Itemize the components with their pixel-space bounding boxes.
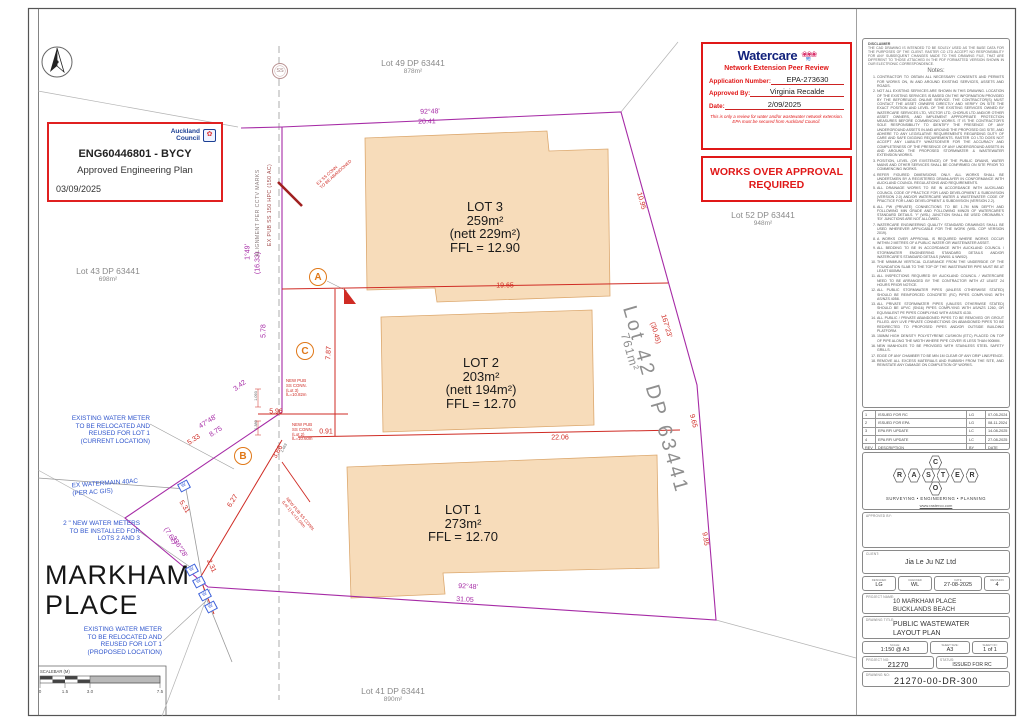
project-name-line2: BUCKLANDS BEACH (893, 606, 955, 613)
scalebar-tick: 7.5 (157, 689, 163, 694)
council-emblem-icon: ✿ (203, 129, 216, 142)
dimension-label: (30.45) (649, 321, 662, 344)
logo-hexagon: S (922, 468, 935, 483)
approved-by-box: APPROVED BY: (862, 512, 1010, 548)
alignment-note: ALIGNMENT PER CCTV MARKS (255, 169, 261, 256)
client-box: CLIENT: Jia Le Ju NZ Ltd (862, 550, 1010, 574)
scale-row: SCALE: 1:150 @ A3 SHEET SIZE: A3 SHEET N… (862, 641, 1010, 654)
sheet-size-box: SHEET SIZE: A3 (930, 641, 970, 654)
application-number-value: EPA-273630 (771, 76, 844, 85)
project-no-box: PROJECT NO: 21270 (862, 656, 934, 669)
application-number-label: Application Number: (709, 78, 771, 85)
note-item: ALL PW (PRIVATE) CONNECTIONS TO BE 1.7M … (877, 205, 1004, 222)
meta-revision-box: REVISION4 (984, 576, 1010, 591)
watercare-stamp: Watercare ❀❀❀ ≋ Network Extension Peer R… (701, 42, 852, 150)
dimension-label: 1.380 (254, 420, 258, 430)
stamp-date-value: 2/09/2025 (725, 101, 844, 110)
auckland-council-logo: Auckland Council ✿ (171, 129, 216, 142)
meta-designed-box: DESIGNEDLG (862, 576, 896, 591)
water-annotation: EXISTING WATER METERTO BE RELOCATED ANDR… (84, 626, 162, 656)
pipe-callout: NEW PUB SS CONN.(Lot 1) IL=11.04m (281, 497, 315, 535)
dimension-label: 5.96 (269, 409, 283, 416)
note-item: ALL BEDDING TO BE IN ACCORDANCE WITH AUC… (877, 246, 1004, 259)
dimension-label: 5.33 (186, 433, 201, 446)
note-item: CONTRACTOR TO OBTAIN ALL NECESSARY CONSE… (877, 75, 1004, 88)
meta-fields-row: DESIGNEDLGCHECKEDWLDATE27-08-2025REVISIO… (862, 576, 1010, 591)
logo-hexagon: A (908, 468, 921, 483)
logo-website: www.rasterco.com (863, 503, 1009, 508)
dimension-label: 20.41 (418, 118, 436, 126)
scalebar-label: SCALEBAR (M) (40, 669, 70, 674)
note-item: ALL PUBLIC STORMWATER PIPES (UNLESS OTHE… (877, 288, 1004, 301)
note-item: REMOVE ALL EXCESS MATERIALS AND RUBBISH … (877, 359, 1004, 368)
scalebar-tick: 3.0 (87, 689, 93, 694)
dimension-label: 1°49' (245, 244, 252, 260)
logo-hexagon: T (937, 468, 950, 483)
ss-manhole-label: SS (276, 68, 283, 74)
dimension-label: 3.42 (232, 379, 247, 393)
road-name: MARKHAM PLACE (45, 560, 190, 620)
water-meter-icon: W (204, 600, 218, 613)
note-item: WATERCARE ENGINEERING QUALITY STANDARD D… (877, 223, 1004, 236)
lot-label: LOT 2203m²(nett 194m²)FFL = 12.70 (446, 356, 517, 410)
logo-hexagon: O (929, 481, 942, 496)
dimension-label: 1.463 (280, 443, 288, 453)
lot-label: LOT 3259m²(nett 229m²)FFL = 12.90 (450, 200, 521, 254)
sheet-no-box: SHEET NO: 1 of 1 (972, 641, 1008, 654)
logo-hexagon: R (893, 468, 906, 483)
revision-table: 1ISSUED FOR RCLG07-05-20242ISSUED FOR EP… (862, 410, 1010, 450)
dimension-label: 8.75 (208, 425, 223, 438)
note-item: ALL PUBLIC / PRIVATE ABANDONED PIPES TO … (877, 316, 1004, 333)
watercare-flower-icon: ❀❀❀ ≋ (801, 50, 815, 62)
alignment-note: EX PUB SS 150 HPC (150 AC) (267, 164, 273, 246)
status-value: ISSUED FOR RC (937, 662, 1007, 668)
water-meter-icon: W (192, 575, 206, 588)
water-annotation: 2 " NEW WATER METERSTO BE INSTALLED FORL… (63, 520, 140, 543)
notes-panel: DISCLAIMER THE CAD DRAWING IS INTENDED T… (862, 38, 1010, 408)
note-item: NEW MANHOLES TO BE PROVIDED WITH STAINLE… (877, 344, 1004, 353)
revision-row: 1ISSUED FOR RCLG07-05-2024 (863, 411, 1009, 419)
dimension-label: 5.31 (177, 499, 190, 514)
dimension-label: 9.65 (688, 414, 698, 429)
note-item: A WORKS OVER APPROVAL IS REQUIRED WHERE … (877, 237, 1004, 246)
water-annotation: EXISTING WATER METERTO BE RELOCATED ANDR… (72, 415, 150, 445)
watercare-stamp-note: This is only a review for water and/or w… (709, 114, 844, 124)
connection-marker-b: B (234, 447, 252, 465)
logo-hexagon: E (951, 468, 964, 483)
meta-checked-box: CHECKEDWL (898, 576, 932, 591)
revision-row: 4EPA RFI UPDATELC27-08-2025 (863, 436, 1009, 444)
council-stamp-date: 03/09/2025 (56, 184, 101, 194)
drawing-number-box: DRAWING NO: 21270-00-DR-300 (862, 671, 1010, 687)
dimension-label: 5.78 (261, 324, 268, 338)
dimension-label: 92°48' (458, 583, 478, 591)
logo-hexagon: R (966, 468, 979, 483)
sheet-no-value: 1 of 1 (973, 647, 1007, 653)
drawing-title-box: DRAWING TITLE: PUBLIC WASTEWATER LAYOUT … (862, 616, 1010, 639)
engineering-plan-subtitle: Approved Engineering Plan (49, 165, 221, 176)
dimension-label: 2.31 (205, 558, 217, 573)
connection-marker-c: C (296, 342, 314, 360)
note-item: EDGE OF ANY CHAMBER TO BE MIN 1M CLEAR O… (877, 354, 1004, 358)
dimension-label: 19.65 (496, 283, 514, 290)
approved-by-value: Virginia Recalde (750, 88, 844, 97)
dimension-label: 336°28' (170, 535, 188, 559)
surveyor-logo-box: RASTERCO SURVEYING • ENGINEERING • PLANN… (862, 452, 1010, 510)
drawing-number-value: 21270-00-DR-300 (863, 676, 1009, 686)
lot-label: LOT 1273m²FFL = 12.70 (428, 503, 498, 544)
note-item: NOT ALL EXISTING SERVICES ARE SHOWN IN T… (877, 89, 1004, 157)
drawing-title-line1: PUBLIC WASTEWATER (893, 621, 969, 628)
revision-row: 3EPA RFI UPDATELC14-08-2025 (863, 428, 1009, 436)
drawing-title-line2: LAYOUT PLAN (893, 630, 941, 637)
watercare-wordmark: Watercare (738, 48, 798, 63)
note-item: ALL PRIVATE STORMWATER PIPES (UNLESS OTH… (877, 302, 1004, 315)
notes-heading: Notes: (868, 68, 1004, 74)
raster-co-logo: RASTERCO (886, 455, 986, 495)
parcel-label: Lot 41 DP 63441890m² (361, 686, 425, 703)
dimension-label: 9.85 (700, 532, 709, 547)
dimension-label: 7.87 (325, 346, 333, 360)
parcel-label: Lot 43 DP 63441698m² (76, 266, 140, 283)
scalebar-tick: 1.5 (62, 689, 68, 694)
note-item: 150MM HIGH DENSITY POLYSTYRENE CUSHION (… (877, 334, 1004, 343)
dimension-label: 10.95 (635, 192, 647, 211)
project-name-box: PROJECT NAME: 10 MARKHAM PLACE BUCKLANDS… (862, 593, 1010, 614)
client-name: Jia Le Ju NZ Ltd (905, 559, 956, 566)
project-status-row: PROJECT NO: 21270 STATUS: ISSUED FOR RC (862, 656, 1010, 669)
pipe-callout: NEW PUBSS CONN.(Lot 3)IL=10.82m (286, 379, 307, 398)
note-item: ALL INSPECTIONS REQUIRED BY AUCKLAND COU… (877, 274, 1004, 287)
dimension-label: 92°48' (420, 108, 440, 116)
works-over-approval-banner: WORKS OVER APPROVAL REQUIRED (701, 156, 852, 202)
revision-row: 2ISSUED FOR EPALG08-11-2024 (863, 419, 1009, 427)
meta-date-box: DATE27-08-2025 (934, 576, 982, 591)
dimension-label: 31.05 (456, 596, 474, 604)
water-meter-icon: W (177, 479, 191, 492)
scale-box: SCALE: 1:150 @ A3 (862, 641, 928, 654)
disclaimer-text: THE CAD DRAWING IS INTENDED TO BE SOLELY… (868, 46, 1004, 66)
pipe-callout: EX SS CONNTO BE ABANDONED (316, 156, 353, 191)
scale-value: 1:150 @ A3 (863, 647, 927, 653)
approved-by-label: Approved By: (709, 90, 750, 97)
council-approval-stamp: Auckland Council ✿ ENG60446801 - BYCY Ap… (47, 122, 223, 202)
note-item: POSITION, LEVEL (OR EXISTENCE) OF THE PU… (877, 159, 1004, 172)
water-annotation: EX WATERMAIN 40AC(PER AC GIS) (72, 478, 139, 498)
engineering-plan-ref: ENG60446801 - BYCY (49, 148, 221, 160)
peer-review-heading: Network Extension Peer Review (709, 65, 844, 72)
connection-marker-a: A (309, 268, 327, 286)
dimension-label: 1.093 (254, 391, 258, 401)
scalebar-tick: 0 (39, 689, 42, 694)
revision-header-row: REVDESCRIPTIONBYDATE (863, 444, 1009, 450)
water-meter-icon: W (198, 588, 212, 601)
status-box: STATUS: ISSUED FOR RC (936, 656, 1008, 669)
parcel-label: Lot 49 DP 63441878m² (381, 58, 445, 75)
notes-list: CONTRACTOR TO OBTAIN ALL NECESSARY CONSE… (868, 75, 1004, 367)
parcel-label: Lot 52 DP 63441948m² (731, 210, 795, 227)
drawing-sheet: SS MARKHAM PLACE SCALEBAR (M) 92°48'20.4… (0, 0, 1024, 724)
sheet-size-value: A3 (931, 647, 969, 653)
dimension-label: 167°23' (659, 314, 672, 339)
logo-tagline: SURVEYING • ENGINEERING • PLANNING (863, 496, 1009, 501)
dimension-label: 0.91 (319, 429, 333, 436)
note-item: ALL DRAINAGE WORKS TO BE IN ACCORDANCE W… (877, 186, 1004, 203)
pipe-callout: NEW PUBSS CONN.(Lot 2)IL=10.60m (292, 423, 313, 442)
logo-hexagon: C (929, 455, 942, 470)
dimension-label: 22.06 (551, 435, 569, 442)
dimension-label: 6.27 (226, 493, 239, 508)
stamp-date-label: Date: (709, 103, 725, 110)
note-item: REFER FIGURED DIMENSIONS ONLY. ALL WORKS… (877, 173, 1004, 186)
project-name-line1: 10 MARKHAM PLACE (893, 598, 956, 605)
note-item: THE MINIMUM VERTICAL CLEARANCE FROM THE … (877, 260, 1004, 273)
